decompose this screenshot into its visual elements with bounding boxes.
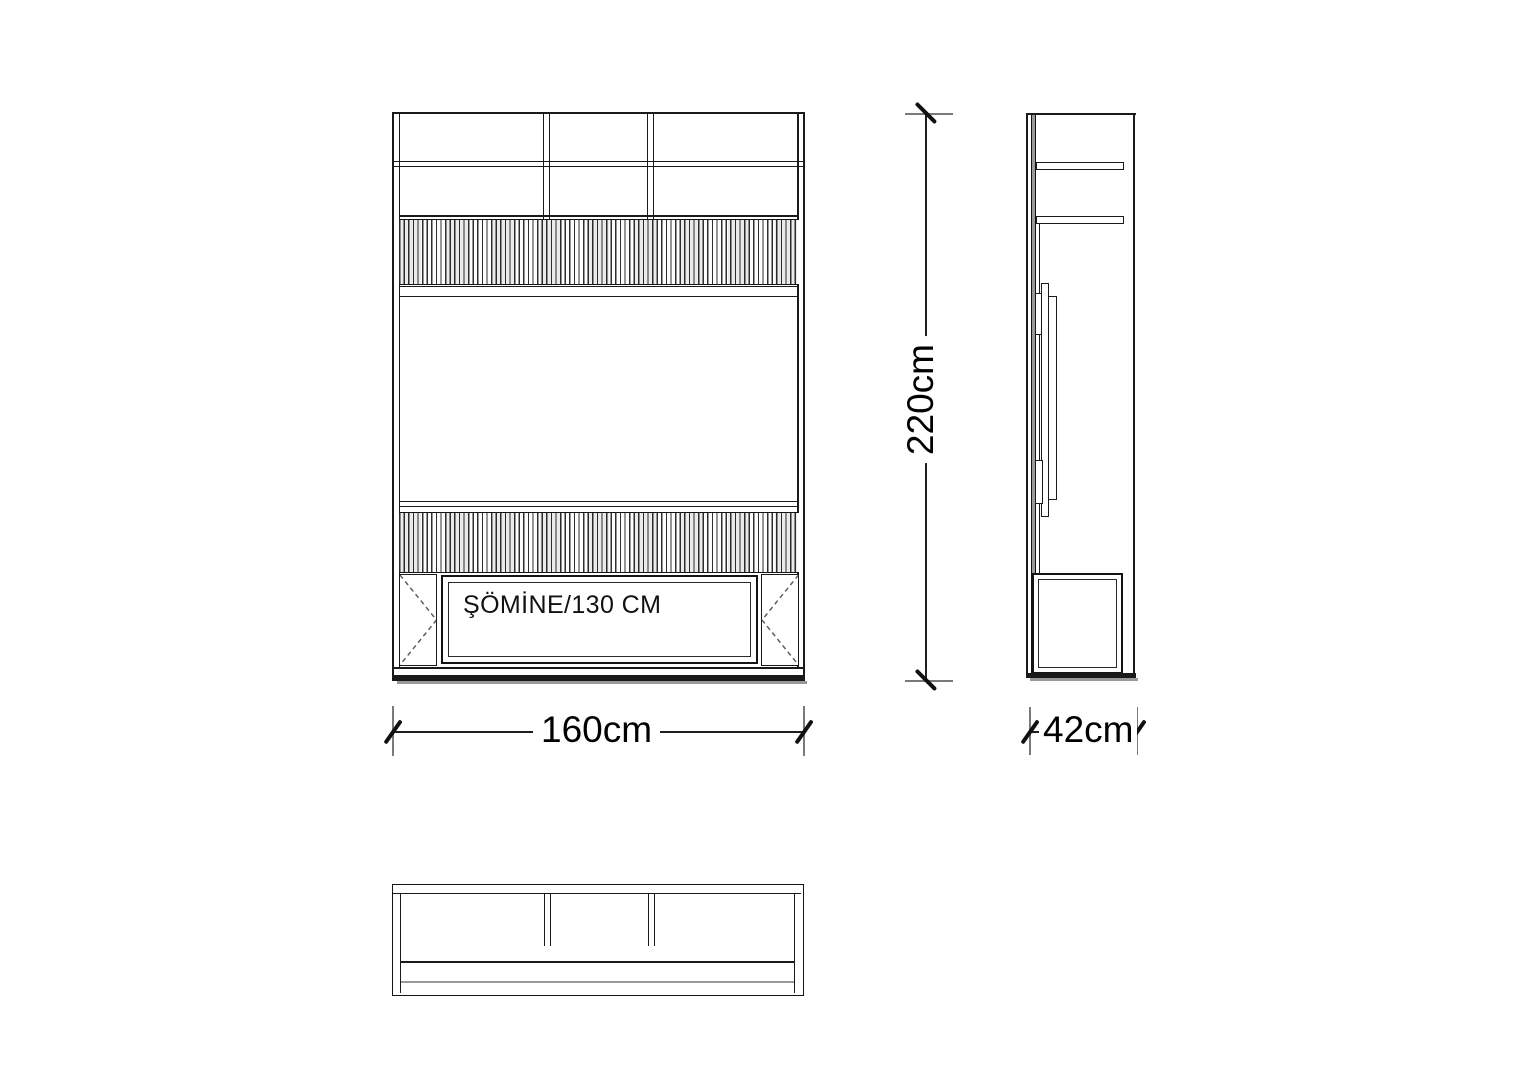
top-view bbox=[392, 884, 804, 996]
slat-panel-upper bbox=[399, 219, 799, 285]
side-slat-panel-edge bbox=[1039, 224, 1040, 574]
top-view-divider-right bbox=[648, 894, 655, 946]
upper-slat-frame-line bbox=[399, 215, 799, 217]
front-view: ŞÖMİNE/130 CM bbox=[392, 112, 805, 687]
front-left-panel-outer bbox=[392, 112, 394, 680]
shelf-line bbox=[394, 161, 803, 167]
side-rear-wall bbox=[1133, 113, 1135, 677]
top-view-back-edge-line bbox=[401, 961, 794, 963]
top-view-front-edge-line bbox=[393, 893, 801, 895]
height-dim-label: 220cm bbox=[900, 336, 943, 463]
door-left bbox=[399, 574, 438, 666]
side-shelf-lower bbox=[1036, 216, 1124, 224]
top-view-shadow-line bbox=[401, 981, 794, 983]
door-right bbox=[761, 574, 800, 666]
fireplace-box: ŞÖMİNE/130 CM bbox=[441, 575, 758, 664]
side-top-edge bbox=[1026, 113, 1136, 115]
front-right-panel-outer bbox=[803, 112, 805, 680]
front-bottom-shadow bbox=[397, 681, 807, 684]
top-view-left-panel-line bbox=[400, 894, 402, 993]
tv-mount-bracket-lower bbox=[1035, 460, 1043, 504]
depth-dim-label: 42cm bbox=[1039, 710, 1137, 751]
shelf-divider-post-right bbox=[647, 114, 654, 220]
front-top-edge bbox=[392, 112, 805, 114]
door-swing-left-icon bbox=[400, 575, 437, 665]
mid-frame-band bbox=[399, 501, 799, 507]
side-bottom-shadow bbox=[1030, 678, 1138, 681]
side-shelf-upper bbox=[1036, 162, 1124, 170]
door-swing-right-icon bbox=[762, 575, 799, 665]
slat-panel-lower bbox=[399, 512, 799, 573]
plinth-line bbox=[394, 667, 803, 669]
fireplace-inner-frame: ŞÖMİNE/130 CM bbox=[448, 582, 751, 657]
top-view-right-panel-line bbox=[794, 894, 796, 993]
side-fireplace-inner-frame bbox=[1038, 579, 1117, 668]
tv-screen bbox=[1048, 296, 1057, 500]
side-fireplace-box bbox=[1032, 573, 1123, 674]
side-front-wall bbox=[1026, 113, 1028, 677]
width-dim-label: 160cm bbox=[533, 710, 660, 751]
top-view-divider-left bbox=[544, 894, 551, 946]
upper-frame-band bbox=[399, 286, 799, 297]
side-view bbox=[1026, 113, 1138, 684]
shelf-divider-post-left bbox=[543, 114, 550, 220]
technical-drawing-canvas: ŞÖMİNE/130 CM bbox=[0, 0, 1528, 1080]
fireplace-label: ŞÖMİNE/130 CM bbox=[463, 591, 661, 620]
